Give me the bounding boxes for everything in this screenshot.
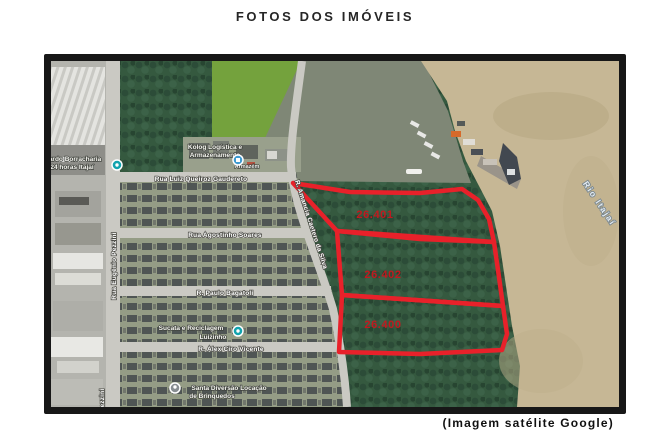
street-label-soares: Rua Agostinho Soares — [188, 232, 262, 239]
tire-shop-poi-icon — [112, 160, 122, 170]
place-label-santa-line1: Santa Diversão Locação — [191, 385, 266, 392]
street-label-vicente: R. Alex Ciro Vicente — [198, 346, 264, 353]
industrial-strip — [51, 61, 113, 407]
street-label-gaudereto: Rua Luiz Queiroz Gaudereto — [155, 176, 248, 183]
place-label-sucata-line1: Sucata e Reciclagem — [159, 325, 224, 332]
satellite-image-frame: 26.401 26.402 26.400 Rua Luiz Queiroz Ga… — [44, 54, 626, 414]
place-label-borracharia-line1: ardo Borracharia — [51, 156, 102, 163]
parcel-label-26402: 26.402 — [364, 269, 401, 281]
storage-poi-icon — [233, 155, 243, 165]
map-pin-icon — [170, 383, 180, 393]
recycling-poi-icon — [233, 326, 243, 336]
image-source-caption: (Imagem satélite Google) — [443, 416, 615, 430]
place-label-borracharia-line2: 24 horas Itajaí — [51, 164, 94, 171]
street-label-bagatoli: R. Paulo Bagatoli — [197, 290, 254, 297]
street-label-pezzini: Rua Eugênio Pezzini — [111, 232, 118, 299]
place-label-santa-line2: de Brinquedos — [189, 393, 235, 400]
street-label-pezzini-south: Rua Eugênio Pezzini — [99, 389, 106, 407]
photo-page: FOTOS DOS IMÓVEIS — [0, 0, 650, 437]
place-label-sucata-line2: Luizinho — [200, 334, 227, 341]
place-label-kolog-line1: Kolog Logística e — [188, 144, 243, 151]
satellite-map: 26.401 26.402 26.400 Rua Luiz Queiroz Ga… — [51, 61, 619, 407]
boat — [406, 169, 422, 174]
parcel-label-26401: 26.401 — [356, 209, 393, 221]
page-title: FOTOS DOS IMÓVEIS — [0, 9, 650, 24]
parcel-label-26400: 26.400 — [364, 319, 401, 331]
